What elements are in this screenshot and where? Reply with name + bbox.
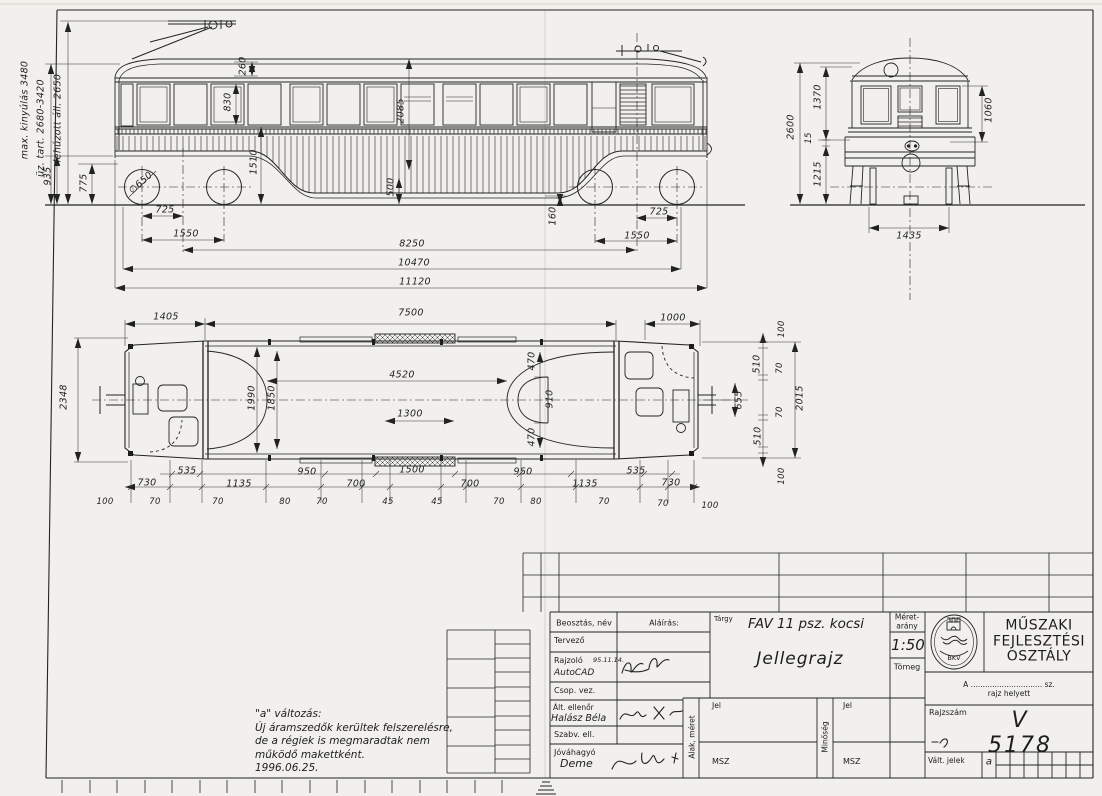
pantograph-folded <box>616 44 706 66</box>
dim-label: 160 <box>548 206 559 225</box>
dim-label: 10470 <box>398 258 430 269</box>
dim-label: 535 <box>626 466 645 477</box>
dim-label: 500 <box>386 177 397 196</box>
signature-rajzolo <box>622 659 669 673</box>
dim-label: 4520 <box>389 370 414 381</box>
dim-label: 510 <box>753 426 764 445</box>
dim-label: 1370 <box>813 84 824 109</box>
titleblock-header-name: Beosztás, név <box>556 619 612 628</box>
blueprint-page: max. kinyúlás 3480üz. tart. 2680-3420leh… <box>0 0 1102 796</box>
dim-label: 7500 <box>398 308 423 319</box>
drawing-number-label: Rajzszám <box>929 708 967 717</box>
dim-label: 100 <box>701 501 718 511</box>
subject-label: Tárgy <box>714 615 733 623</box>
dim-label: 1435 <box>896 231 921 242</box>
dim-label: 45 <box>382 497 393 507</box>
dim-label: 470 <box>527 427 538 446</box>
quality-label: Minőség <box>821 721 830 752</box>
dim-label: 70 <box>775 362 785 373</box>
row-csop-vez: Csop. vez. <box>554 686 595 695</box>
revision-table-grid <box>523 553 1093 612</box>
dim-label: 1215 <box>813 161 824 186</box>
dim-label: 1510 <box>249 149 260 174</box>
dim-label: 700 <box>346 479 365 490</box>
jel-label-1: Jel <box>712 701 721 710</box>
dim-label: 935 <box>43 166 54 185</box>
jovahagyo-signature-text: Deme <box>560 757 593 770</box>
drawing-number: V 5178 <box>979 708 1061 758</box>
row-jovahagyo: Jóváhagyó <box>554 748 596 757</box>
dim-label: 655 <box>734 390 745 409</box>
dim-label: 11120 <box>399 277 431 288</box>
dim-label: 70 <box>149 497 160 507</box>
dim-label: 510 <box>752 354 763 373</box>
approval-grid <box>447 630 530 773</box>
dim-label: 1135 <box>572 479 597 490</box>
dim-label: 1135 <box>226 479 251 490</box>
dim-label: 70 <box>212 497 223 507</box>
dim-label: lehúzott áll. 2650 <box>53 74 64 163</box>
dim-label: 70 <box>657 499 668 509</box>
dim-label: 1550 <box>173 229 198 240</box>
scale-value: 1:50 <box>891 636 925 654</box>
drawing-title: Jellegrajz <box>756 649 843 669</box>
dim-label: 260 <box>238 56 249 75</box>
alt-ellenor-name: Halász Béla <box>551 713 606 724</box>
row-rajzolo: Rajzoló <box>554 656 583 665</box>
row-alt-ellenor: Ált. ellenőr <box>553 703 594 712</box>
plan-view <box>92 334 732 466</box>
side-view <box>45 20 745 252</box>
dim-label: 70 <box>598 497 609 507</box>
dim-label: 725 <box>155 205 174 216</box>
front-view <box>790 38 1085 300</box>
dim-label: 1850 <box>267 385 278 410</box>
dim-label: 470 <box>527 351 538 370</box>
signature-jovahagyo <box>612 753 678 769</box>
dim-label: 2015 <box>795 385 806 410</box>
dim-label: 100 <box>777 320 787 337</box>
dim-label: 1500 <box>399 465 424 476</box>
titleblock-header-signature: Aláírás: <box>649 619 679 628</box>
replaces-label: A .............................. sz. raj… <box>963 680 1056 698</box>
dim-label: 15 <box>804 132 814 143</box>
dim-label: 700 <box>460 479 479 490</box>
dim-label: 8250 <box>399 239 424 250</box>
revision-note: "a" változás: Új áramszedők kerültek fel… <box>255 708 453 776</box>
dim-label: 2600 <box>786 114 797 139</box>
rajzolo-name: AutoCAD <box>554 668 594 678</box>
dim-label: 730 <box>661 478 680 489</box>
dim-label: 1060 <box>984 97 995 122</box>
dim-label: 70 <box>493 497 504 507</box>
dim-label: 70 <box>775 406 785 417</box>
dim-label: 950 <box>297 467 316 478</box>
dim-label: 910 <box>545 389 556 408</box>
subject-value: FAV 11 psz. kocsi <box>748 616 864 632</box>
row-szabv-ell: Szabv. ell. <box>554 730 594 739</box>
dim-label: 70 <box>316 497 327 507</box>
org-logo-text: BKV <box>947 654 960 662</box>
dim-label: 1550 <box>624 231 649 242</box>
dim-label: 535 <box>177 466 196 477</box>
pantograph-raised <box>132 20 236 59</box>
rajzolo-date: 95.11.14. <box>593 656 624 664</box>
mass-label: Tömeg <box>894 663 921 672</box>
dim-label: 1300 <box>397 409 422 420</box>
dim-label: 1990 <box>247 385 258 410</box>
row-tervezo: Tervező <box>554 636 585 645</box>
dim-label: max. kinyúlás 3480 <box>20 61 31 160</box>
change-letter: a <box>986 757 992 768</box>
scale-label: Méret- arány <box>895 613 919 630</box>
dim-label: 1405 <box>153 312 178 323</box>
signatures <box>612 659 947 769</box>
dim-label: 775 <box>79 173 90 192</box>
signature-mark <box>932 739 947 747</box>
signature-ellenor <box>620 707 682 719</box>
msz-label-1: MSZ <box>712 757 729 766</box>
msz-label-2: MSZ <box>843 757 860 766</box>
dim-label: 80 <box>530 497 541 507</box>
shape-size-label: Alak, méret <box>688 715 697 758</box>
dim-label: 2085 <box>396 98 407 123</box>
dim-label: üz. tart. 2680-3420 <box>36 79 47 177</box>
org-name: MŰSZAKI FEJLESZTÉSI OSZTÁLY <box>993 618 1085 665</box>
dim-label: 1000 <box>660 313 685 324</box>
jel-label-2: Jel <box>843 701 852 710</box>
dim-label: 830 <box>223 92 234 111</box>
dim-label: 100 <box>96 497 113 507</box>
dim-label: 730 <box>137 478 156 489</box>
dim-label: 100 <box>777 467 787 484</box>
dim-label: 725 <box>649 207 668 218</box>
dim-label: 45 <box>431 497 442 507</box>
dim-label: 2348 <box>59 384 70 409</box>
dim-label: 950 <box>513 467 532 478</box>
dim-label: 80 <box>279 497 290 507</box>
change-marks-label: Vált. jelek <box>928 756 965 765</box>
